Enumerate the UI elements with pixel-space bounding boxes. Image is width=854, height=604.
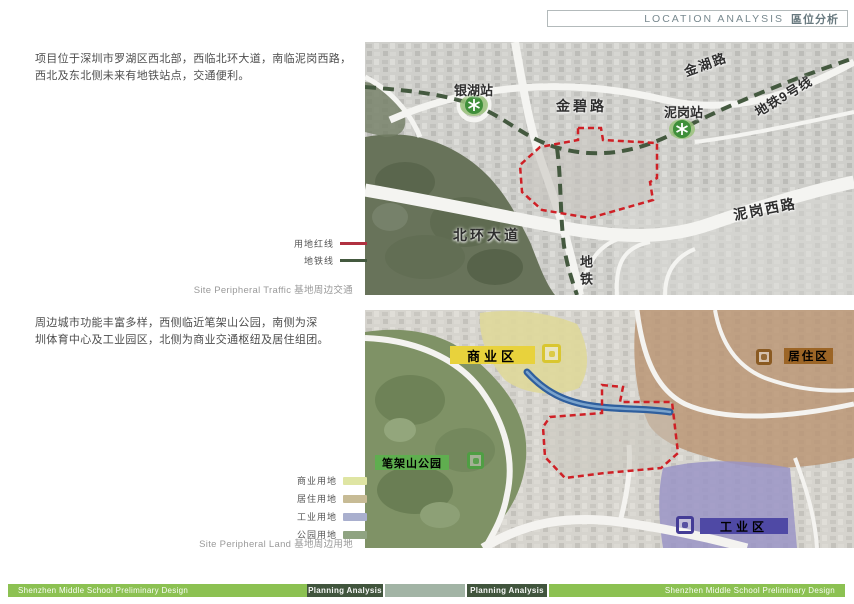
legend-label: 用地红线 — [294, 237, 334, 250]
park-zone-label: 笔架山公园 — [375, 455, 449, 470]
legend-label: 工业用地 — [297, 510, 337, 523]
landuse-map: 商业区 居住区 笔架山公园 工业区 — [365, 310, 854, 548]
footer-title-right: Shenzhen Middle School Preliminary Desig… — [549, 584, 845, 597]
landuse-map-graphic — [365, 310, 854, 548]
page-header: LOCATION ANALYSIS 區位分析 — [547, 10, 848, 27]
residential-zone-label: 居住区 — [784, 348, 833, 364]
map1-label-metro: 地铁 — [576, 255, 595, 289]
footer-tab-right: Planning Analysis — [467, 584, 547, 597]
traffic-paragraph-line2: 西北及东北侧未来有地铁站点，交通便利。 — [35, 68, 367, 85]
traffic-map: 银湖站 金碧路 金湖路 泥岗站 地铁9号线 泥岗西路 北环大道 地铁 — [365, 42, 854, 295]
map1-label-jinbi-road: 金碧路 — [556, 96, 607, 116]
nigang-station-icon — [669, 119, 695, 139]
commercial-zone-label: 商业区 — [450, 346, 535, 364]
metroline-swatch — [340, 259, 367, 262]
residential-zone-icon — [756, 349, 772, 365]
landuse-caption: Site Peripheral Land 基地周边用地 — [147, 536, 353, 550]
map1-label-yinhu-station: 银湖站 — [454, 80, 493, 99]
traffic-paragraph-line1: 项目位于深圳市罗湖区西北部，西临北环大道，南临泥岗西路， — [35, 51, 367, 68]
legend-row: 工业用地 — [281, 510, 367, 523]
park-zone-icon — [467, 452, 484, 469]
landuse-paragraph: 周边城市功能丰富多样，西侧临近笔架山公园，南侧为深 圳体育中心及工业园区，北侧为… — [35, 315, 367, 349]
page-title-zh: 區位分析 — [791, 11, 839, 27]
commercial-zone-icon — [542, 344, 561, 363]
icon-dot — [761, 354, 767, 360]
footer-spacer — [385, 584, 465, 597]
legend-label: 商业用地 — [297, 474, 337, 487]
landuse-paragraph-line2: 圳体育中心及工业园区，北侧为商业交通枢纽及居住组团。 — [35, 332, 367, 349]
icon-dot — [549, 351, 555, 357]
traffic-paragraph: 项目位于深圳市罗湖区西北部，西临北环大道，南临泥岗西路， 西北及东北侧未来有地铁… — [35, 51, 367, 85]
industrial-swatch — [343, 513, 367, 521]
legend-row: 地铁线 — [281, 254, 367, 267]
industrial-zone-icon — [676, 516, 694, 534]
footer-title-left: Shenzhen Middle School Preliminary Desig… — [8, 584, 307, 597]
legend-row: 用地红线 — [281, 237, 367, 250]
page-title-en: LOCATION ANALYSIS — [644, 13, 784, 25]
residential-swatch — [343, 495, 367, 503]
map1-label-nigang-station: 泥岗站 — [664, 102, 703, 121]
icon-dot — [473, 458, 479, 464]
legend-label: 居住用地 — [297, 492, 337, 505]
traffic-legend: 用地红线 地铁线 — [281, 237, 367, 271]
industrial-zone-label: 工业区 — [700, 518, 788, 534]
landuse-paragraph-line1: 周边城市功能丰富多样，西侧临近笔架山公园，南侧为深 — [35, 315, 367, 332]
legend-label: 地铁线 — [304, 254, 334, 267]
redline-swatch — [340, 242, 367, 245]
legend-row: 商业用地 — [281, 474, 367, 487]
legend-row: 居住用地 — [281, 492, 367, 505]
traffic-map-graphic — [365, 42, 854, 295]
footer-tab-left: Planning Analysis — [307, 584, 383, 597]
commercial-swatch — [343, 477, 367, 485]
icon-dot — [682, 522, 688, 528]
traffic-caption: Site Peripheral Traffic 基地周边交通 — [147, 282, 353, 296]
presentation-page: LOCATION ANALYSIS 區位分析 项目位于深圳市罗湖区西北部，西临北… — [0, 0, 854, 604]
map1-label-beihuan-avenue: 北环大道 — [453, 225, 521, 245]
